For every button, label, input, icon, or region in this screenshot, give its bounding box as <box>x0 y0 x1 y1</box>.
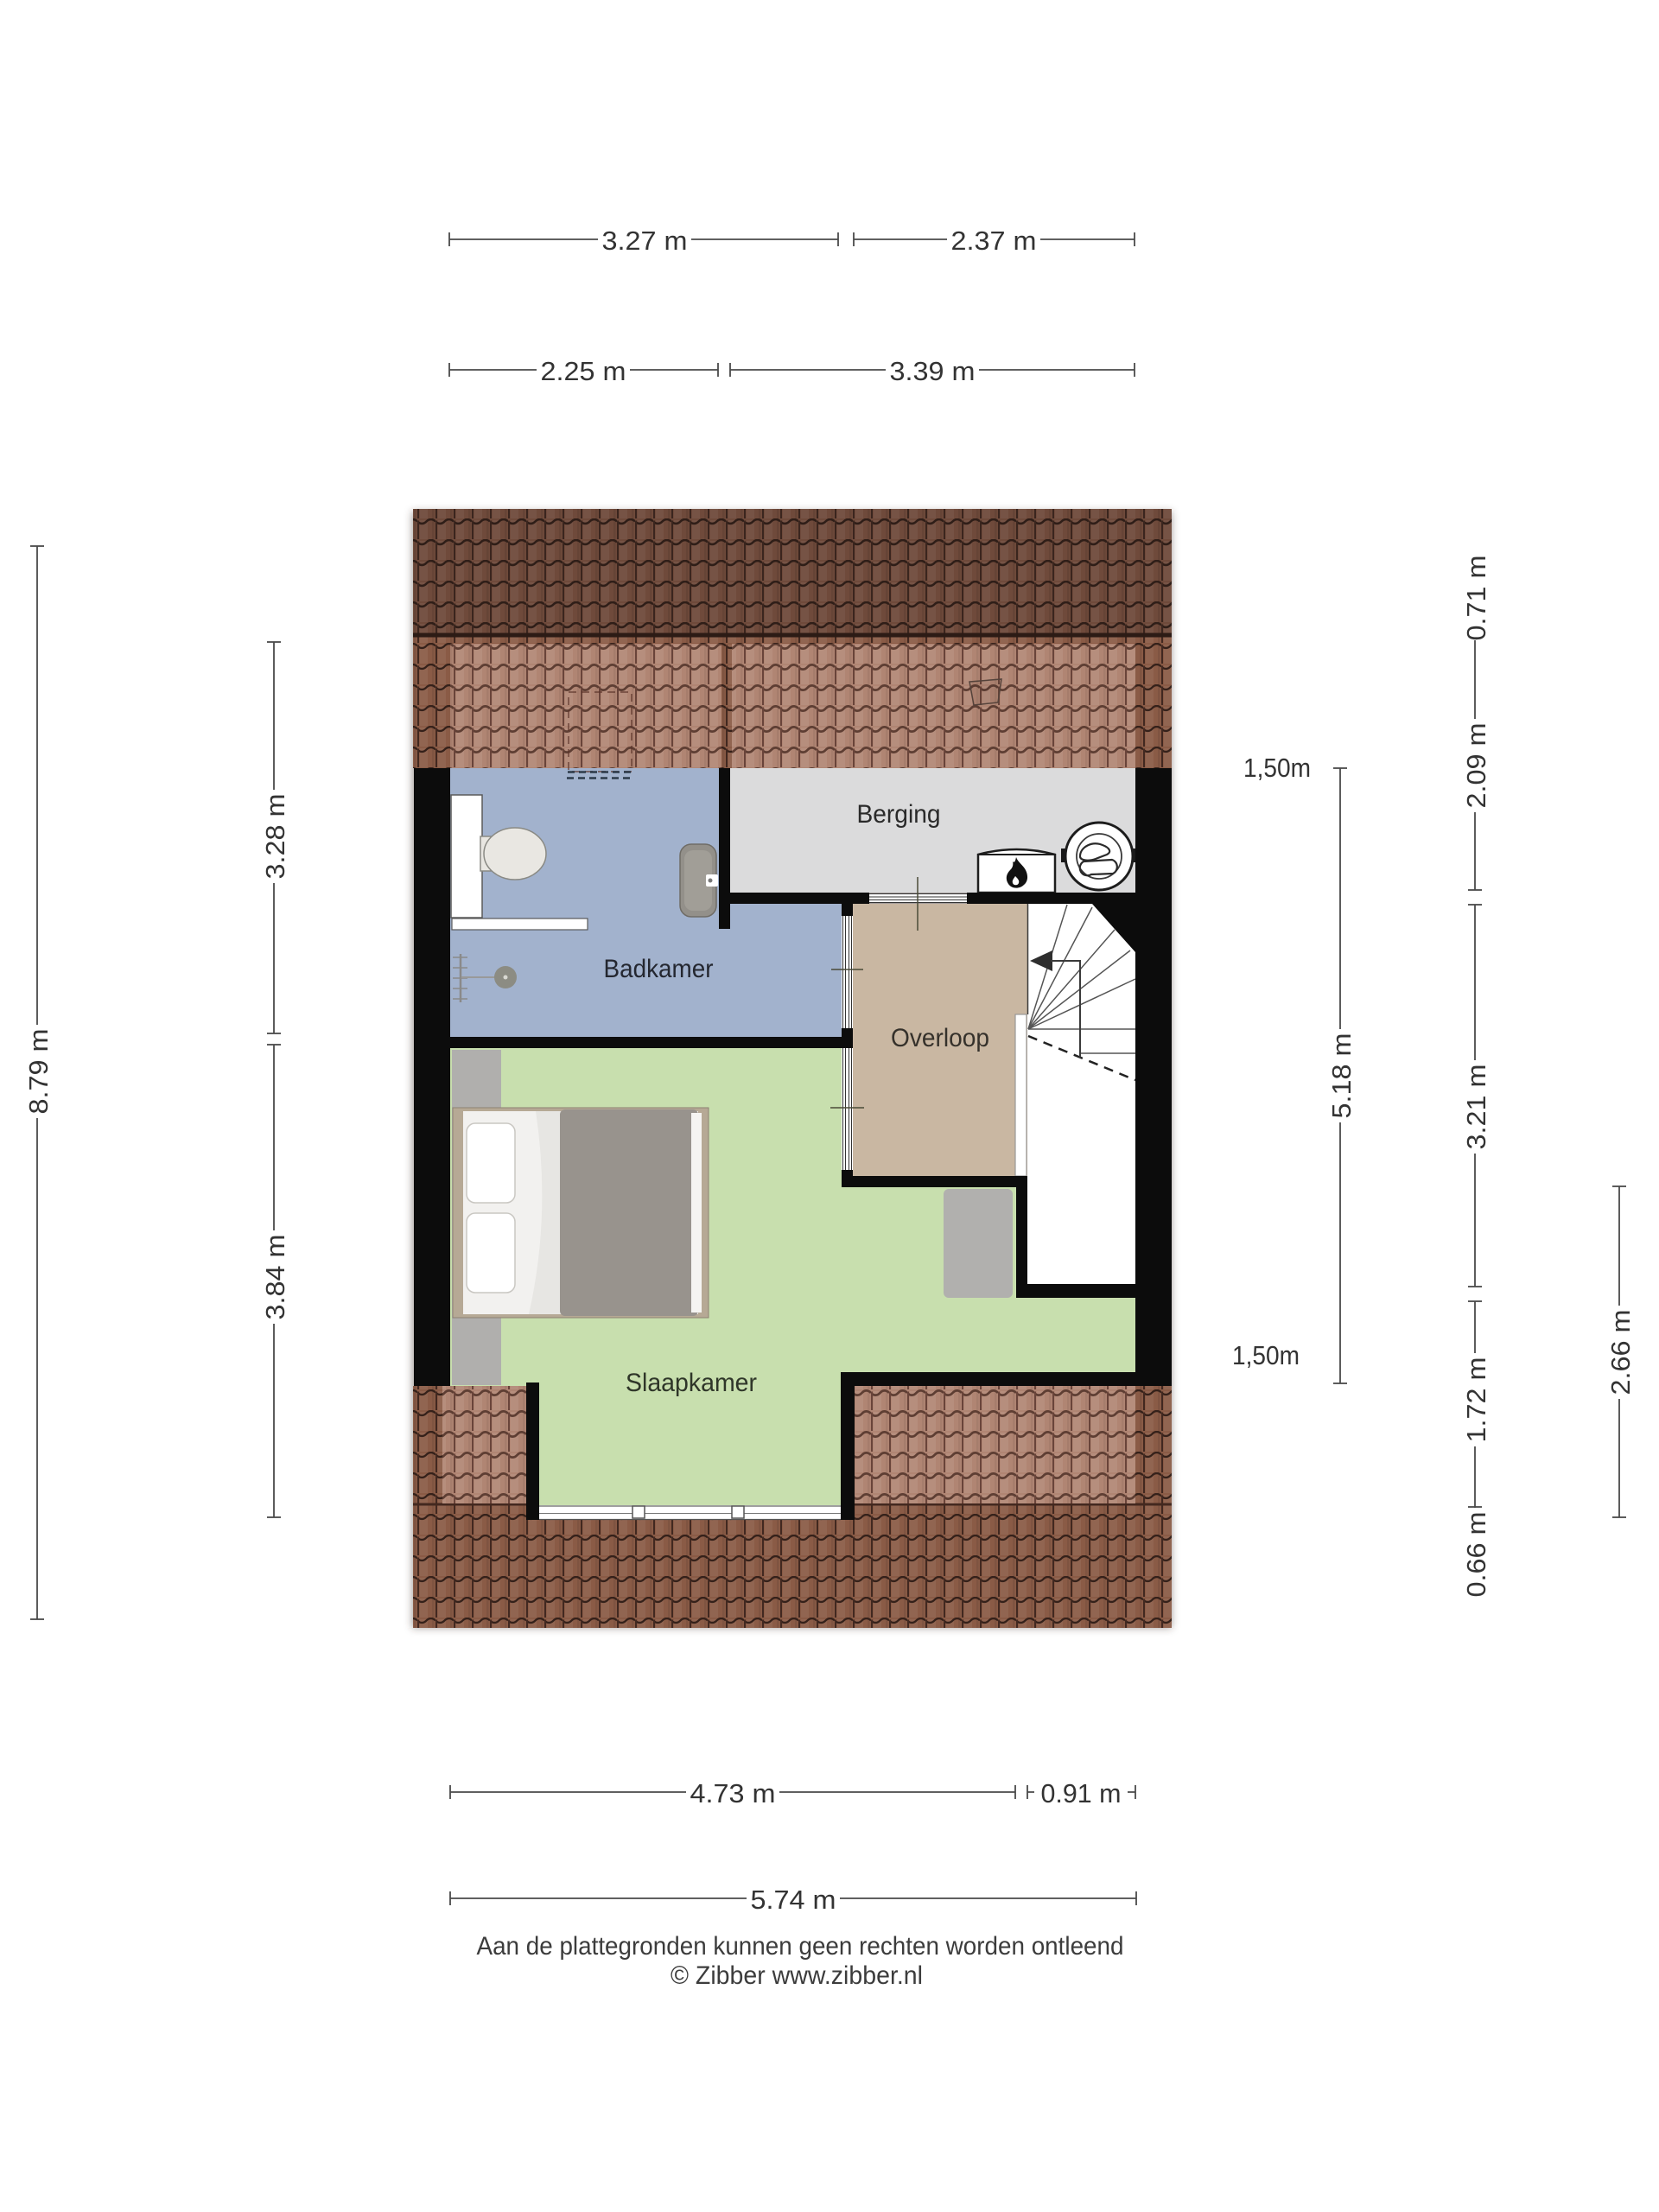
svg-text:2.37 m: 2.37 m <box>951 226 1037 256</box>
svg-text:3.27 m: 3.27 m <box>602 226 688 256</box>
svg-text:0.66 m: 0.66 m <box>1461 1512 1491 1598</box>
svg-text:2.25 m: 2.25 m <box>541 356 626 386</box>
svg-text:1,50m: 1,50m <box>1243 753 1311 783</box>
svg-text:2.66 m: 2.66 m <box>1605 1310 1636 1395</box>
svg-text:0.71 m: 0.71 m <box>1461 556 1491 641</box>
svg-text:Berging: Berging <box>857 800 941 829</box>
svg-text:5.18 m: 5.18 m <box>1326 1033 1357 1119</box>
svg-text:© Zibber www.zibber.nl: © Zibber www.zibber.nl <box>671 1961 923 1990</box>
svg-text:Badkamer: Badkamer <box>604 955 714 983</box>
svg-text:3.39 m: 3.39 m <box>890 356 976 386</box>
svg-text:3.28 m: 3.28 m <box>260 794 290 880</box>
svg-text:8.79 m: 8.79 m <box>23 1029 54 1115</box>
svg-text:1,50m: 1,50m <box>1232 1340 1300 1370</box>
svg-text:2.09 m: 2.09 m <box>1461 723 1491 809</box>
svg-text:3.84 m: 3.84 m <box>260 1235 290 1320</box>
svg-text:1.72 m: 1.72 m <box>1461 1357 1491 1443</box>
svg-text:Overloop: Overloop <box>891 1024 989 1052</box>
svg-text:3.21 m: 3.21 m <box>1461 1065 1491 1150</box>
svg-text:Aan de plattegronden kunnen ge: Aan de plattegronden kunnen geen rechten… <box>477 1932 1124 1961</box>
svg-text:4.73 m: 4.73 m <box>690 1778 776 1808</box>
svg-text:5.74 m: 5.74 m <box>751 1885 836 1915</box>
svg-text:Slaapkamer: Slaapkamer <box>626 1369 757 1397</box>
svg-text:0.91 m: 0.91 m <box>1041 1778 1122 1808</box>
